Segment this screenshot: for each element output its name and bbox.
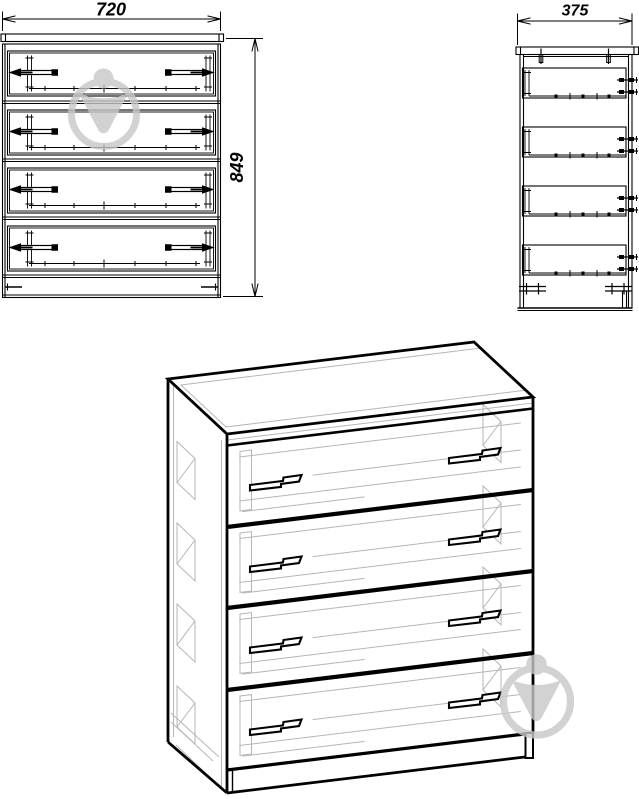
bulb-head-icon (526, 654, 547, 675)
side-drawer-2 (523, 127, 639, 159)
front-view: 720 849 (1, 0, 263, 298)
side-drawer-4 (523, 245, 639, 277)
isometric-hidden-lines (171, 348, 531, 787)
dimension-depth-label: 375 (562, 3, 590, 20)
front-drawer-4 (8, 226, 216, 271)
side-drawer-3 (523, 186, 639, 218)
dimension-height: 849 (223, 39, 263, 297)
dimension-depth: 375 (518, 3, 633, 46)
bulb-cone-icon (79, 94, 128, 134)
side-view: 375 (516, 3, 639, 311)
front-drawer-3 (8, 168, 216, 213)
dimension-width-label: 720 (96, 0, 126, 20)
bulb-cone-icon (512, 680, 562, 721)
watermark-bottom (504, 654, 571, 735)
dimension-width: 720 (3, 0, 221, 31)
technical-drawing-page: 720 849 375 (0, 0, 639, 799)
bulb-head-icon (94, 69, 114, 89)
isometric-view (168, 342, 533, 793)
watermark-top (72, 69, 137, 147)
side-view-drawers (523, 68, 639, 277)
dimension-height-label: 849 (227, 152, 247, 182)
technical-drawing-canvas: 720 849 375 (0, 0, 639, 799)
side-drawer-1 (523, 68, 639, 100)
